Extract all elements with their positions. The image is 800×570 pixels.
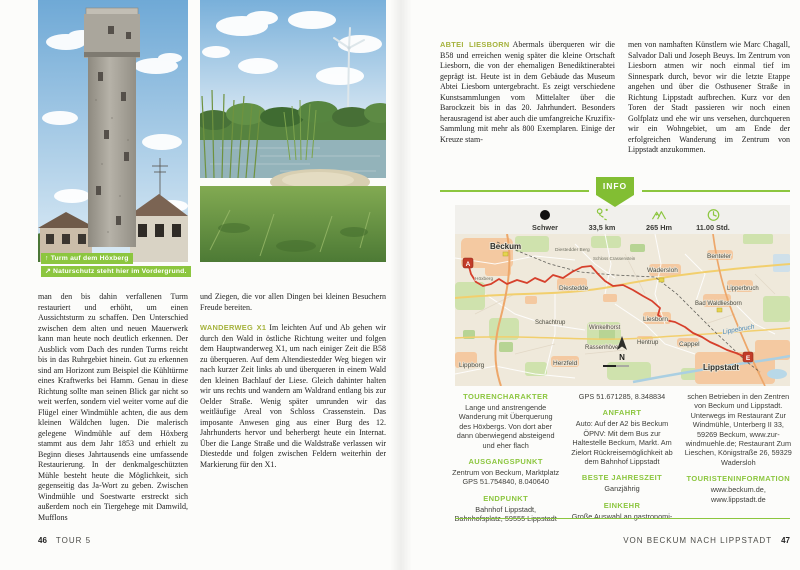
right-body-column-2: men von namhaften Künstlern wie Marc Cha… xyxy=(628,40,790,166)
footer-rule xyxy=(455,518,790,519)
tour-map: Beckum Höxberg Diestedder Berg Schloss C… xyxy=(455,234,790,386)
details-heading: AUSGANGSPUNKT xyxy=(452,457,559,466)
photo-tower-illustration xyxy=(38,0,188,262)
details-text: Große Auswahl an gastronomi- xyxy=(568,512,675,521)
body-paragraph: man den bis dahin verfallenen Turm resta… xyxy=(38,292,188,523)
photo-tower-hoexberg xyxy=(38,0,188,262)
map-label-beckum: Beckum xyxy=(490,242,521,251)
details-heading: TOURENCHARAKTER xyxy=(452,392,559,401)
left-body-column-2: und Ziegen, die vor allen Dingen bei kle… xyxy=(200,292,386,480)
page-number-left: 46 xyxy=(38,536,47,545)
body-text: Im leichten Auf und Ab gehen wir durch d… xyxy=(200,323,386,469)
map-label-rassenhoevel: Rassenhövel xyxy=(585,345,620,351)
right-page-footer: VON BECKUM NACH LIPPSTADT47 xyxy=(614,536,790,545)
details-text: Zentrum von Beckum, Marktplatz GPS 51.75… xyxy=(452,468,559,487)
map-label-diestedder-berg: Diestedder Berg xyxy=(555,247,590,253)
elevation-value: 265 Hm xyxy=(630,223,688,232)
page-number-right: 47 xyxy=(781,536,790,545)
caption-arrow-ne-icon: ↗ xyxy=(45,268,51,275)
photo-caption-1: ↑ Turm auf dem Höxberg xyxy=(41,253,133,264)
map-label-liesborn: Liesborn xyxy=(643,316,668,323)
body-paragraph: und Ziegen, die vor allen Dingen bei kle… xyxy=(200,292,386,313)
photo-lake-illustration xyxy=(200,0,386,262)
map-marker-start: A xyxy=(463,258,473,268)
distance-value: 33,5 km xyxy=(573,223,631,232)
details-heading: TOURISTENINFORMATION xyxy=(685,474,792,483)
route-distance-icon xyxy=(573,207,631,222)
info-badge: INFO xyxy=(596,177,634,207)
details-heading: ANFAHRT xyxy=(568,408,675,417)
map-label-bad-waldliesborn: Bad Waldliesborn xyxy=(695,301,742,307)
difficulty-value: Schwer xyxy=(516,223,574,232)
right-body-column-1: ABTEI LIESBORNAbermals überqueren wir di… xyxy=(440,40,615,155)
body-paragraph: men von namhaften Künstlern wie Marc Cha… xyxy=(628,40,790,156)
caption-text: Naturschutz steht hier im Vordergrund. xyxy=(53,268,187,275)
map-label-schloss-crassenstein: Schloss Crassenstein xyxy=(593,256,636,261)
details-text: Lange und anstrengende Wanderung mit Übe… xyxy=(452,403,559,450)
map-label-cappel: Cappel xyxy=(679,341,700,348)
map-label-wadersloh: Wadersloh xyxy=(647,267,678,274)
map-label-diestedde: Diestedde xyxy=(559,285,589,292)
map-scale-bar xyxy=(603,365,629,367)
map-label-hoexberg: Höxberg xyxy=(475,276,493,282)
photo-caption-2: ↗ Naturschutz steht hier im Vordergrund. xyxy=(41,266,191,277)
map-label-schachtrup: Schachtrup xyxy=(535,320,566,326)
tour-label: TOUR 5 xyxy=(56,536,91,545)
body-paragraph: WANDERWEG X1Im leichten Auf und Ab gehen… xyxy=(200,323,386,470)
caption-text: Turm auf dem Höxberg xyxy=(51,255,129,262)
details-heading: ENDPUNKT xyxy=(452,494,559,503)
caption-arrow-up-icon: ↑ xyxy=(45,255,49,262)
map-marker-end: E xyxy=(743,352,753,362)
stat-difficulty: Schwer xyxy=(516,207,574,232)
svg-text:E: E xyxy=(746,355,751,362)
tour-details: TOURENCHARAKTER Lange und anstrengende W… xyxy=(452,392,792,524)
tour-stats-bar: Schwer 33,5 km 265 Hm xyxy=(455,205,790,235)
runin-heading-wanderweg: WANDERWEG X1 xyxy=(200,323,266,332)
details-heading: EINKEHR xyxy=(568,501,675,510)
details-heading: BESTE JAHRESZEIT xyxy=(568,473,675,482)
body-paragraph: ABTEI LIESBORNAbermals überqueren wir di… xyxy=(440,40,615,145)
map-label-lippstadt: Lippstadt xyxy=(703,363,739,372)
map-label-benteler: Benteler xyxy=(707,253,732,260)
duration-value: 11.00 Std. xyxy=(684,223,742,232)
book-spread: ↑ Turm auf dem Höxberg ↗ Naturschutz ste… xyxy=(0,0,800,570)
svg-text:A: A xyxy=(466,261,471,268)
details-text: Auto: Auf der A2 bis Beckum ÖPNV: Mit de… xyxy=(568,419,675,466)
clock-icon xyxy=(684,207,742,222)
details-text: Bahnhof Lippstadt, Bahnhofsplatz, 59555 … xyxy=(452,505,559,524)
details-text: schen Betrieben in den Zentren von Becku… xyxy=(685,392,792,467)
left-body-column-1: man den bis dahin verfallenen Turm resta… xyxy=(38,292,188,533)
body-text: Abermals überqueren wir die B58 und erre… xyxy=(440,40,615,144)
mountains-icon xyxy=(630,207,688,222)
details-text: Ganzjährig xyxy=(568,484,675,493)
info-divider-left xyxy=(440,190,589,192)
info-divider-right xyxy=(642,190,790,192)
details-text: www.beckum.de, www.lippstadt.de xyxy=(685,485,792,504)
map-label-lipperbruch: Lipperbruch xyxy=(727,286,759,292)
stat-elevation: 265 Hm xyxy=(630,207,688,232)
stat-duration: 11.00 Std. xyxy=(684,207,742,232)
stat-distance: 33,5 km xyxy=(573,207,631,232)
chapter-label: VON BECKUM NACH LIPPSTADT xyxy=(623,536,772,545)
svg-text:N: N xyxy=(619,353,625,362)
page-gutter xyxy=(390,0,412,570)
left-page-footer: 46TOUR 5 xyxy=(38,536,100,545)
map-label-winkelhorst: Winkelhorst xyxy=(589,325,621,331)
details-column-2: GPS 51.671285, 8.348834 ANFAHRT Auto: Au… xyxy=(568,392,675,524)
runin-heading-abtei: ABTEI LIESBORN xyxy=(440,40,510,49)
map-label-lippborg: Lippborg xyxy=(459,362,485,369)
map-label-hentrup: Hentrup xyxy=(637,340,659,346)
map-label-herzfeld: Herzfeld xyxy=(553,360,578,367)
details-column-1: TOURENCHARAKTER Lange und anstrengende W… xyxy=(452,392,559,524)
details-column-3: schen Betrieben in den Zentren von Becku… xyxy=(685,392,792,524)
gps-coordinates: GPS 51.671285, 8.348834 xyxy=(568,392,675,401)
photo-lake-windturbine xyxy=(200,0,386,262)
difficulty-dot-icon xyxy=(540,210,550,220)
